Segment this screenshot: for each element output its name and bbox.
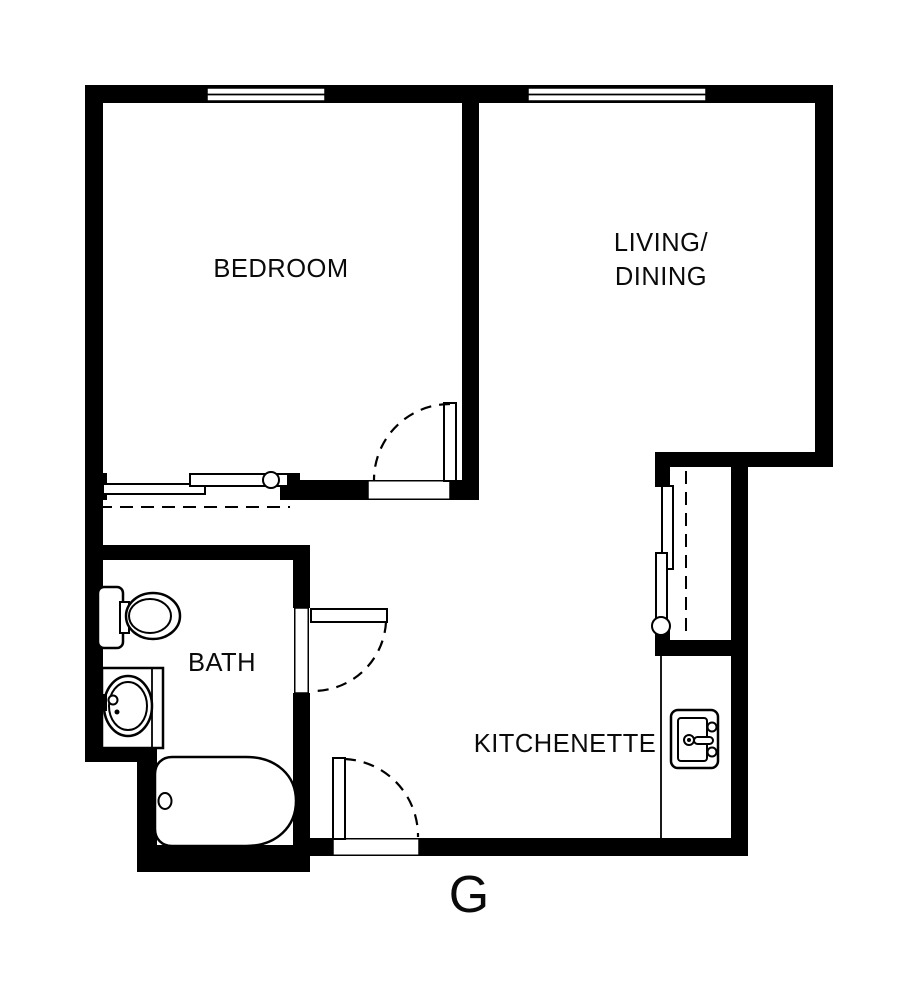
tub-alcove-bottom-wall	[137, 845, 310, 872]
door-threshold	[333, 839, 419, 856]
living-dining-label-line1: LIVING/	[614, 229, 709, 257]
faucet-bar	[103, 694, 107, 711]
kitchenette-label: KITCHENETTE	[474, 730, 657, 758]
faucet-knob	[109, 696, 118, 705]
toilet-bowl-inner	[129, 599, 171, 633]
bedroom-closet-sliding-doors	[99, 472, 290, 507]
tub-entry-divider-wall	[293, 693, 310, 855]
door-swing-arc	[313, 622, 386, 691]
hall-closet-sliding-doors	[652, 471, 686, 636]
top-wall	[85, 85, 833, 103]
bath-door	[295, 608, 387, 693]
faucet-knob-bottom	[708, 748, 717, 757]
floorplan-drawing: BEDROOM LIVING/ DINING BATH KITCHENETTE …	[0, 0, 911, 998]
entry-door	[333, 758, 419, 855]
basin-inner	[109, 682, 147, 730]
door-leaf	[444, 403, 456, 481]
hall-closet-post-top	[655, 467, 670, 487]
bedroom-living-divider-wall	[462, 85, 479, 500]
door-threshold	[368, 481, 450, 500]
vanity-sink	[102, 668, 163, 748]
hall-closet-bottom-wall	[655, 640, 748, 656]
faucet-dot	[115, 710, 120, 715]
bath-top-wall	[85, 545, 310, 560]
bedroom-door	[368, 403, 456, 499]
right-wall	[815, 85, 833, 467]
bedroom-door-corner-wall	[450, 480, 464, 500]
door-swing-arc	[374, 404, 450, 480]
door-swing-arc	[345, 759, 418, 837]
faucet-knob-top	[708, 723, 717, 732]
door-jamb	[295, 608, 309, 693]
door-leaf	[311, 609, 387, 622]
unit-label: G	[449, 866, 489, 924]
tub-outline	[155, 757, 296, 846]
bedroom-window	[207, 88, 325, 101]
kitchen-sink	[671, 710, 718, 768]
toilet	[98, 587, 180, 648]
door-pull	[263, 472, 279, 488]
floorplan-canvas: BEDROOM LIVING/ DINING BATH KITCHENETTE …	[0, 0, 911, 998]
faucet-spout	[694, 737, 713, 744]
sink-drain-dot	[687, 738, 691, 742]
bath-label: BATH	[188, 649, 256, 677]
bottom-wall-right	[419, 838, 748, 856]
tub-drain	[159, 793, 172, 809]
living-window	[528, 88, 706, 101]
bathtub	[155, 757, 296, 846]
living-dining-label-line2: DINING	[615, 263, 707, 291]
door-leaf	[333, 758, 345, 839]
door-pull	[652, 617, 670, 635]
left-wall	[85, 85, 103, 762]
bedroom-label: BEDROOM	[213, 255, 348, 283]
bedroom-bottom-wall	[280, 480, 368, 500]
